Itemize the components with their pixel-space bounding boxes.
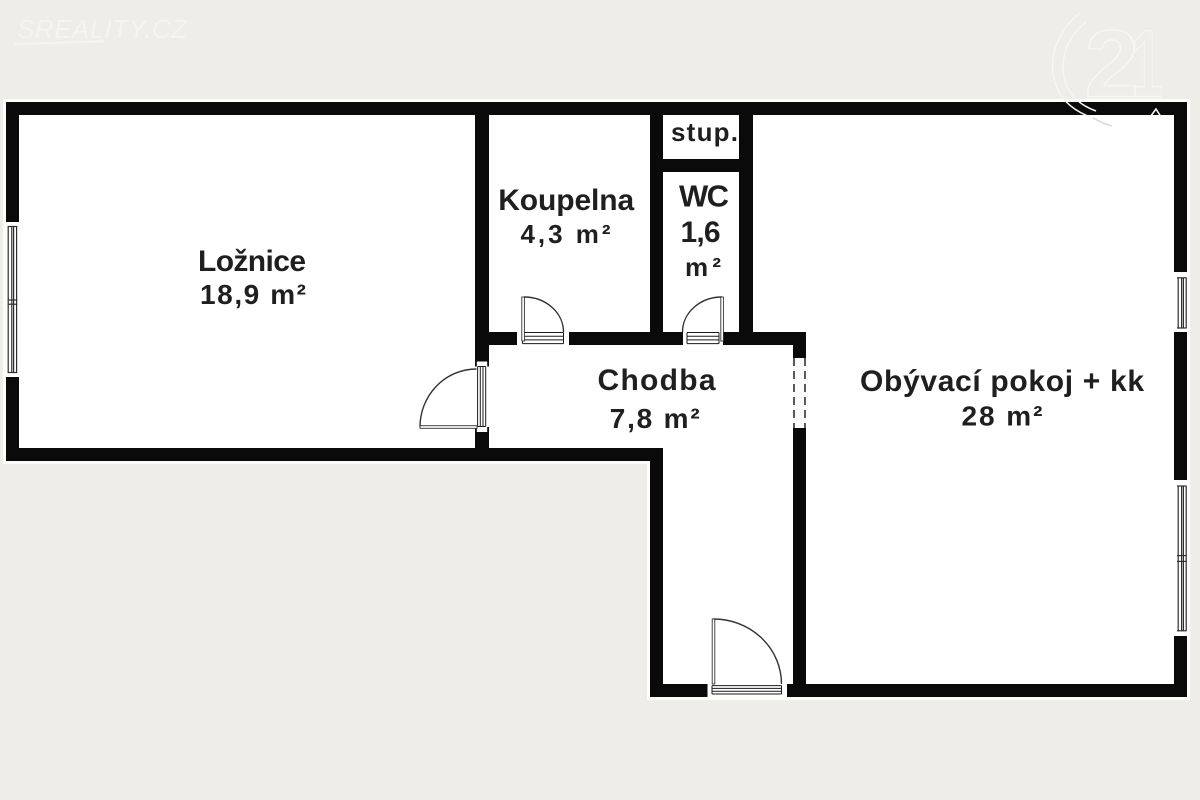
svg-text:4,3 m²: 4,3 m² [521, 219, 611, 249]
svg-text:Ložnice: Ložnice [198, 245, 306, 278]
svg-text:1,6: 1,6 [681, 216, 721, 249]
svg-text:Obývací pokoj + kk: Obývací pokoj + kk [860, 365, 1144, 398]
svg-text:Koupelna: Koupelna [498, 184, 634, 217]
svg-text:Chodba: Chodba [598, 364, 716, 397]
svg-text:7,8 m²: 7,8 m² [610, 403, 700, 434]
svg-text:SREALITY.CZ: SREALITY.CZ [17, 14, 188, 44]
svg-text:stup.: stup. [671, 117, 738, 147]
svg-text:m²: m² [685, 252, 721, 282]
svg-text:1: 1 [1131, 9, 1163, 117]
svg-text:WC: WC [679, 179, 729, 214]
svg-text:28 m²: 28 m² [962, 401, 1043, 432]
